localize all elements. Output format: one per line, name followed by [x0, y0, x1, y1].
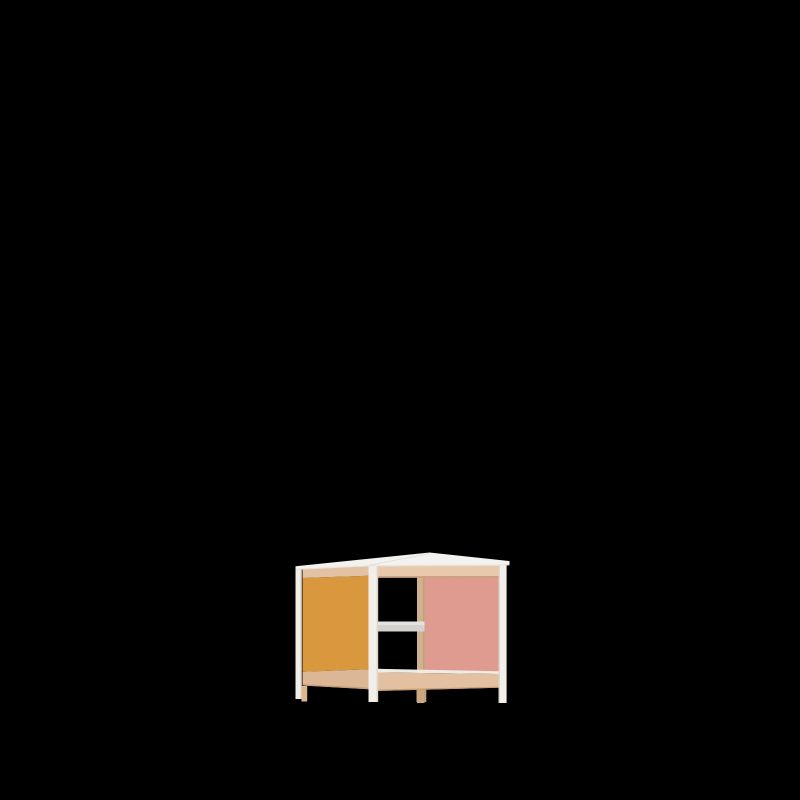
left-leg-inner-foot [302, 686, 308, 702]
right-top-rail-dark-edge [378, 576, 499, 578]
orange-side-panel [303, 576, 369, 672]
left-post-shade [300, 567, 301, 699]
pink-side-panel [425, 577, 499, 673]
table-render [0, 0, 800, 800]
render-stage [0, 0, 800, 800]
front-post-shade [377, 565, 379, 703]
back-post-foot-edge [424, 690, 426, 703]
right-post-shade [499, 564, 500, 703]
middle-crossbar-highlight [378, 622, 425, 626]
